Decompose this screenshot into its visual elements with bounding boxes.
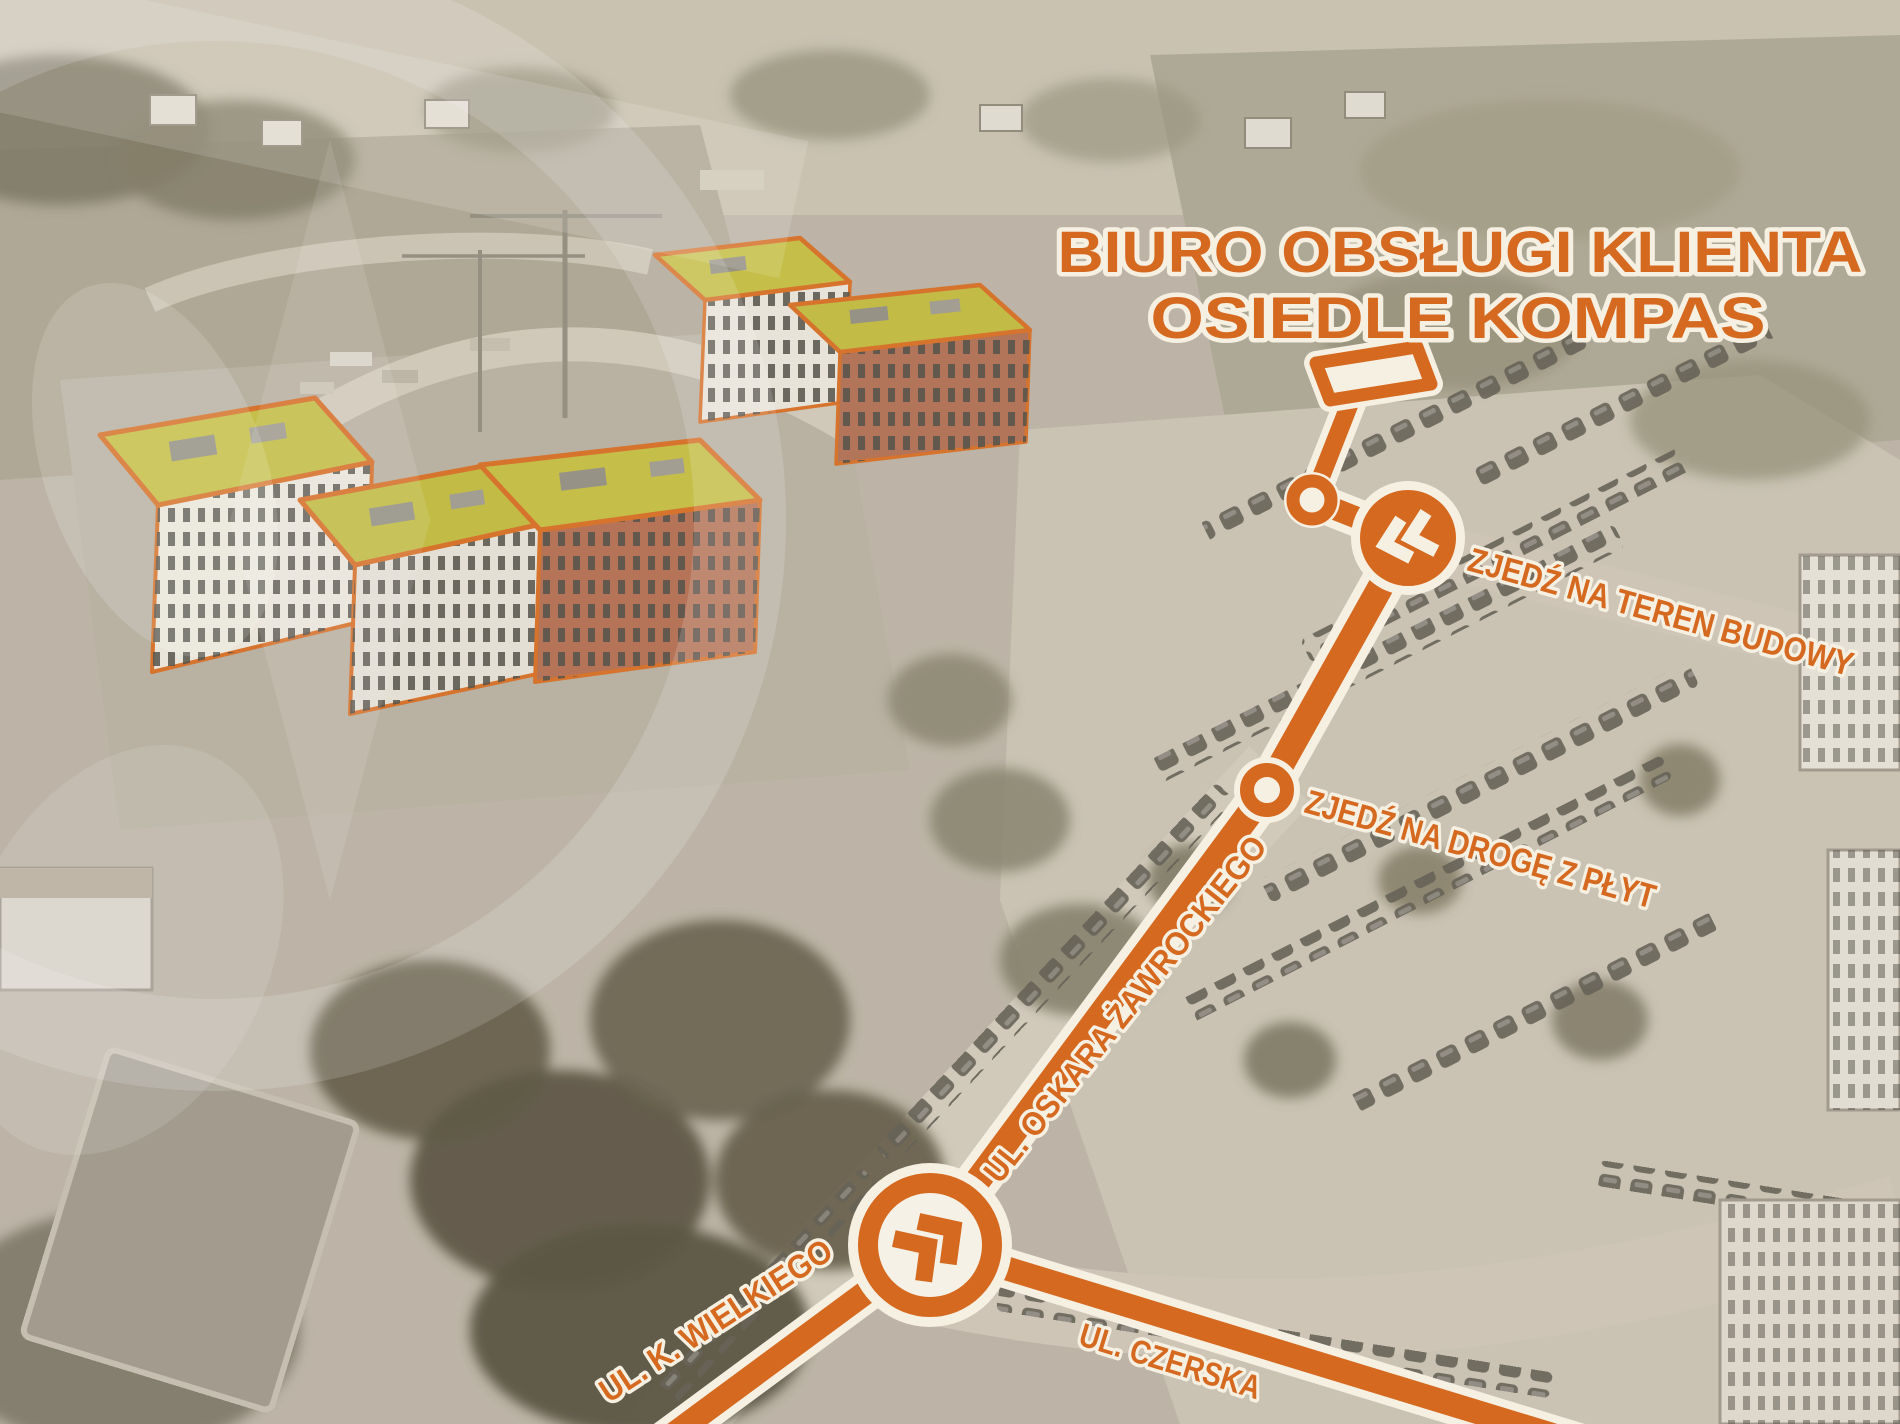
aerial-map-canvas: BIURO OBSŁUGI KLIENTA OSIEDLE KOMPAS ZJE… [0,0,1900,1424]
page-title-line2: OSIEDLE KOMPAS [1151,286,1766,351]
directions-map: BIURO OBSŁUGI KLIENTA OSIEDLE KOMPAS ZJE… [0,0,1900,1424]
route-node-a [1284,472,1340,528]
site-entry-circle [1351,481,1465,595]
junction-circle [848,1163,1012,1327]
billboard-marker-icon [1316,347,1431,400]
page-title-line1: BIURO OBSŁUGI KLIENTA [1058,220,1863,285]
route-node-b [1234,757,1300,823]
